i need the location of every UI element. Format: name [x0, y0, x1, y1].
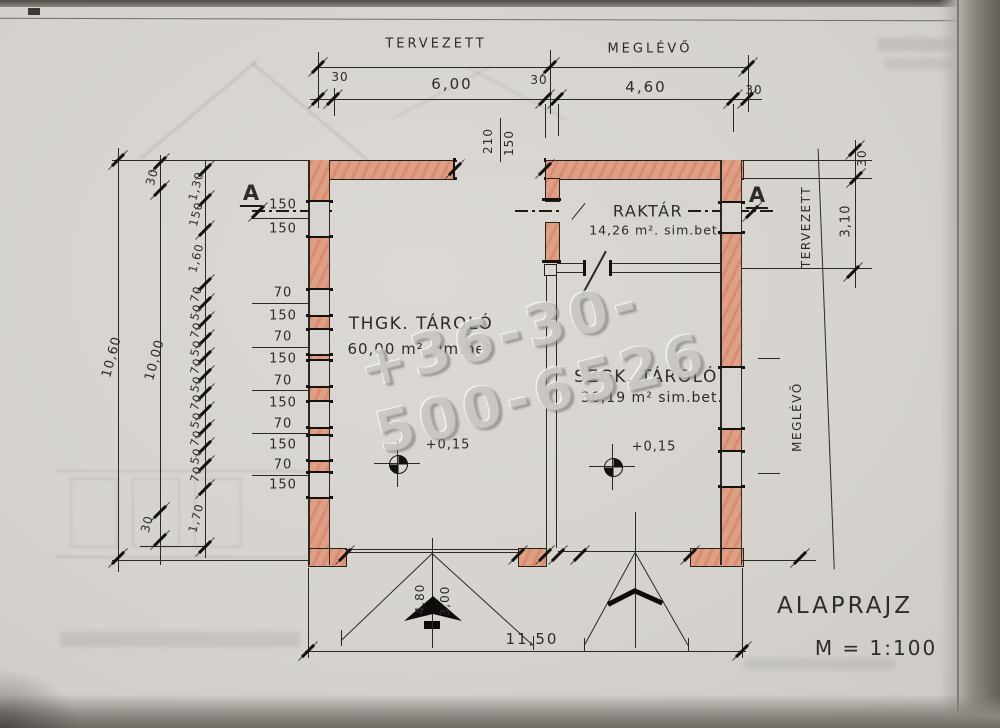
dim-line	[334, 88, 335, 116]
lintel-dim-150: 150	[502, 130, 516, 156]
top-dim-label-tervezett: TERVEZETT	[385, 37, 486, 52]
left-chain-dim: 70	[187, 392, 205, 412]
right-label-tervezett: TERVEZETT	[799, 186, 813, 268]
dim-line	[345, 549, 518, 550]
window-chain-dim: 150	[269, 222, 297, 237]
window	[310, 361, 330, 386]
wall-segment	[690, 548, 744, 567]
window-chain-dim: 70	[274, 286, 293, 301]
scan-top-edge	[0, 0, 1000, 7]
scan-right-paper-line	[957, 0, 959, 728]
window-chain-dim: 70	[274, 458, 293, 473]
wall-segment	[310, 160, 329, 202]
left-chain-dim: 70	[187, 356, 205, 376]
dim-line	[112, 560, 310, 561]
dim-line	[558, 551, 690, 552]
gate-splay-line	[584, 552, 636, 646]
ghost-roof-line	[139, 61, 257, 160]
bottom-dim-total: 11,50	[506, 630, 559, 648]
dim-line	[733, 104, 734, 132]
window-chain-dim: 70	[274, 374, 293, 389]
window-chain-dim: 70	[274, 330, 293, 345]
scan-bottom-left-shadow	[0, 668, 80, 728]
window-chain-separator	[252, 347, 308, 348]
dim-line	[758, 473, 780, 474]
section-marker-left: A	[240, 181, 262, 207]
door-jamb	[583, 260, 586, 276]
scan-corner-mark	[28, 8, 40, 15]
room-level-szgk: +0,15	[632, 440, 677, 455]
wall-segment	[722, 160, 741, 203]
ghost-window	[70, 478, 118, 548]
scan-bottom-edge	[0, 694, 1000, 728]
top-dim-span-old: 4,60	[625, 78, 666, 96]
dim-line	[558, 104, 559, 136]
top-dim-wall-left: 30	[331, 70, 348, 84]
left-chain-dim: 50	[187, 374, 205, 394]
right-dim-span: 3,10	[839, 205, 854, 238]
right-label-meglevo: MEGLÉVŐ	[790, 382, 804, 452]
wall-segment	[308, 160, 457, 180]
window	[310, 330, 330, 354]
left-chain-dim: 70	[187, 320, 205, 340]
dim-line	[635, 512, 636, 648]
window-chain-dim: 70	[274, 417, 293, 432]
dim-line	[318, 67, 749, 68]
window-chain-separator	[252, 390, 308, 391]
left-chain-dim: 70	[187, 284, 205, 304]
window-chain-dim: 150	[269, 396, 297, 411]
window-chain-separator	[252, 433, 308, 434]
window-chain-separator	[252, 218, 308, 219]
dim-line	[308, 568, 309, 658]
window-chain-dim: 150	[269, 478, 297, 493]
top-dim-label-meglevo: MEGLÉVŐ	[607, 42, 692, 57]
window	[455, 162, 545, 177]
window	[722, 203, 742, 232]
window	[310, 290, 330, 315]
room-name-raktar: RAKTÁR	[609, 202, 687, 221]
room-area-raktar: 14,26 m². sim.bet.	[589, 223, 723, 238]
dim-line	[545, 104, 546, 138]
dim-line	[140, 546, 206, 547]
window-chain-separator	[252, 475, 308, 476]
wall-segment	[310, 236, 329, 290]
window	[310, 473, 330, 497]
left-chain-dim: 1,60	[185, 242, 206, 274]
left-chain-dim: 50	[187, 410, 205, 430]
window	[310, 202, 330, 236]
wall-segment	[545, 160, 744, 180]
scan-right-edge	[940, 0, 1000, 728]
left-chain-dim: 70	[187, 428, 205, 448]
scanned-floor-plan-sheet: { "sheet": { "title": "ALAPRAJZ", "scale…	[0, 0, 1000, 728]
dim-line	[742, 160, 872, 161]
dim-line	[742, 560, 816, 561]
top-dim-wall-mid: 30	[530, 73, 547, 87]
window-chain-dim: 150	[269, 309, 297, 324]
dim-line	[305, 651, 746, 652]
section-line	[515, 210, 562, 212]
section-break-line	[571, 203, 585, 220]
wall-cap	[542, 260, 561, 263]
dim-line	[557, 263, 584, 264]
ghost-text-blur	[60, 632, 300, 647]
top-dim-wall-right: 30	[745, 83, 762, 97]
left-dim-top-wall: 30	[143, 167, 161, 187]
gate-dim-width: 4,80	[413, 584, 427, 615]
right-extension-line	[817, 149, 834, 570]
wall-segment	[722, 428, 741, 452]
lintel-dim-210: 210	[481, 128, 495, 154]
left-chain-dim: 50	[187, 302, 205, 322]
ghost-band-line	[55, 556, 310, 558]
left-chain-dim: 1,30	[185, 170, 206, 202]
wall-cap	[542, 198, 561, 201]
level-marker	[604, 458, 623, 477]
left-chain-dim: 50	[187, 446, 205, 466]
door-jamb	[609, 260, 612, 276]
ghost-text-blur	[885, 58, 960, 69]
section-marker-right: A	[746, 183, 768, 209]
door-jamb-square	[544, 264, 557, 276]
dim-line	[205, 160, 206, 558]
left-dim-inner-total: 10,00	[142, 338, 167, 383]
window	[722, 452, 742, 486]
dim-line	[500, 118, 501, 168]
left-chain-dim: 50	[187, 338, 205, 358]
dim-line	[742, 568, 743, 658]
window-chain-dim: 150	[269, 198, 297, 213]
dim-line	[557, 272, 584, 273]
gate-dim-height: 3,00	[438, 586, 452, 617]
wall-segment	[545, 222, 560, 262]
dim-line	[112, 160, 308, 161]
ghost-band-line	[55, 470, 310, 472]
drawing-scale: M = 1:100	[815, 636, 937, 660]
right-dim-wall: 30	[855, 149, 869, 166]
dim-line	[310, 99, 762, 100]
window	[310, 402, 330, 427]
window-chain-separator	[252, 303, 308, 304]
ghost-roof-line	[251, 62, 369, 161]
top-dim-span-new: 6,00	[431, 75, 472, 93]
dim-tick	[793, 551, 807, 565]
left-dim-total: 10,60	[99, 335, 124, 380]
window	[310, 436, 330, 460]
left-chain-dim: 150	[186, 200, 206, 228]
scan-top-ruled-line	[0, 18, 965, 22]
window-chain-dim: 150	[269, 438, 297, 453]
drawing-title: ALAPRAJZ	[777, 593, 913, 619]
window-chain-dim: 150	[269, 352, 297, 367]
ghost-text-blur	[878, 38, 978, 51]
